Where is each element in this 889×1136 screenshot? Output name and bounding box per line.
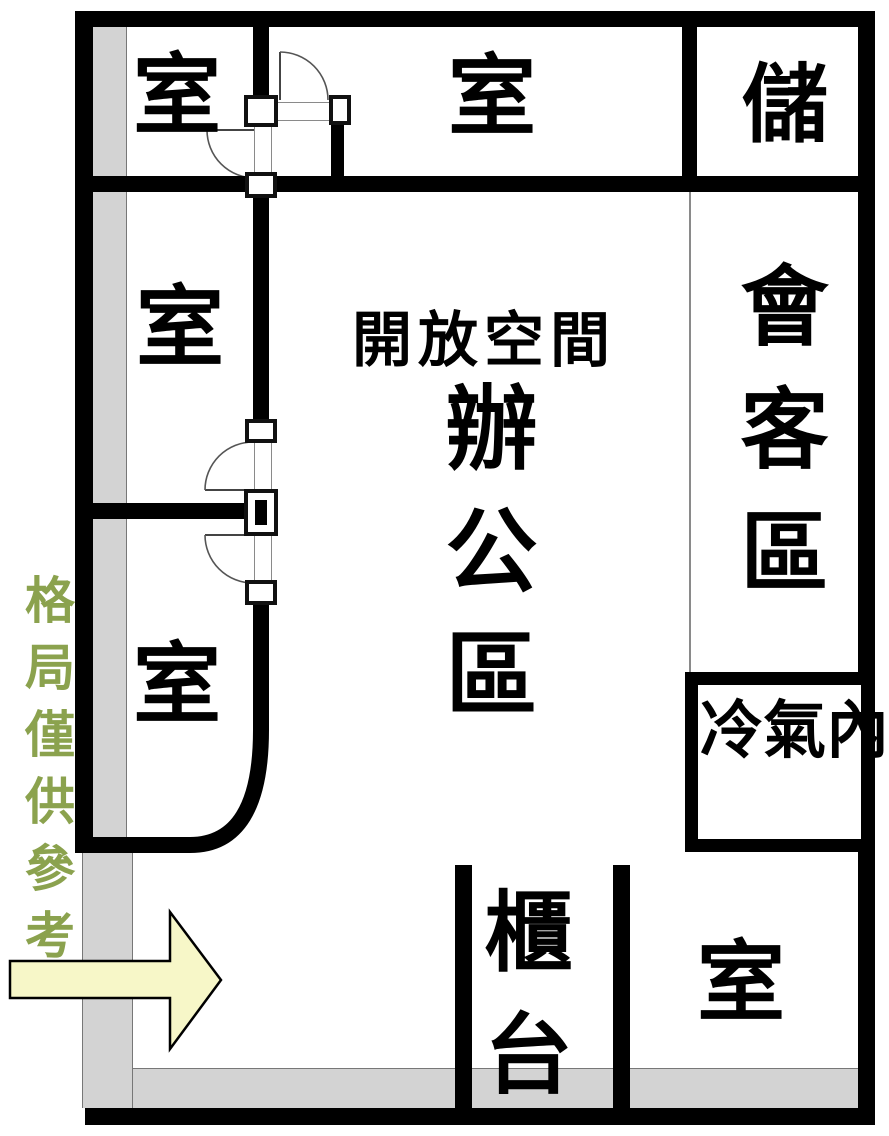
wall-left [75, 11, 93, 853]
doorway-line [254, 443, 255, 489]
disclaimer-text: 格局僅供參考 [21, 574, 71, 976]
door-jamb [244, 95, 278, 127]
door-jamb [245, 172, 277, 198]
wall-midleft-room-right [253, 197, 269, 422]
wall-topleft-room-right [253, 27, 269, 97]
reception-label: 會客區 [733, 260, 821, 629]
door-jamb-double [244, 489, 278, 536]
ac-unit-label: 冷氣內機 [700, 694, 860, 768]
wall-vestibule-stub [331, 118, 344, 176]
door-arc-room2 [205, 442, 253, 490]
doorway-line [254, 125, 255, 172]
door-arc-room3 [205, 535, 253, 583]
room-label-top-left: 室 [133, 52, 221, 140]
wall-storage-left [682, 27, 697, 176]
open-space-label: 辦公區 [437, 380, 529, 749]
door-jamb [245, 419, 277, 443]
doorway-line [271, 443, 272, 489]
wall-divider-top-rooms [93, 176, 858, 192]
door-jamb [329, 95, 351, 125]
door-arc-top [280, 52, 328, 100]
wall-counter-left [455, 865, 472, 1108]
wall-counter-right [613, 865, 630, 1108]
doorway-line [271, 125, 272, 172]
doorway-line [271, 536, 272, 580]
wall-divider-left-rooms [93, 503, 248, 519]
room-label-bottom-right: 室 [697, 939, 785, 1027]
wall-stub [255, 500, 267, 525]
open-space-title: 開放空間 [352, 311, 616, 371]
storage-label: 儲 [742, 62, 828, 148]
floor-plan: 室 室 儲 會客區 開放空間 辦公區 室 室 冷氣內機 櫃台 室 格局僅供參考 [0, 0, 889, 1136]
reception-divider-line [689, 192, 691, 672]
counter-label: 櫃台 [477, 886, 565, 1130]
room-label-top-middle: 室 [448, 53, 536, 141]
door-jamb [245, 580, 277, 605]
doorway-line [254, 536, 255, 580]
wall-right [858, 11, 875, 1125]
doorway-line [277, 120, 331, 121]
room-label-mid-left: 室 [136, 284, 224, 372]
wall-top [75, 11, 875, 27]
room-label-bottom-left: 室 [133, 641, 221, 729]
doorway-line [277, 102, 331, 103]
